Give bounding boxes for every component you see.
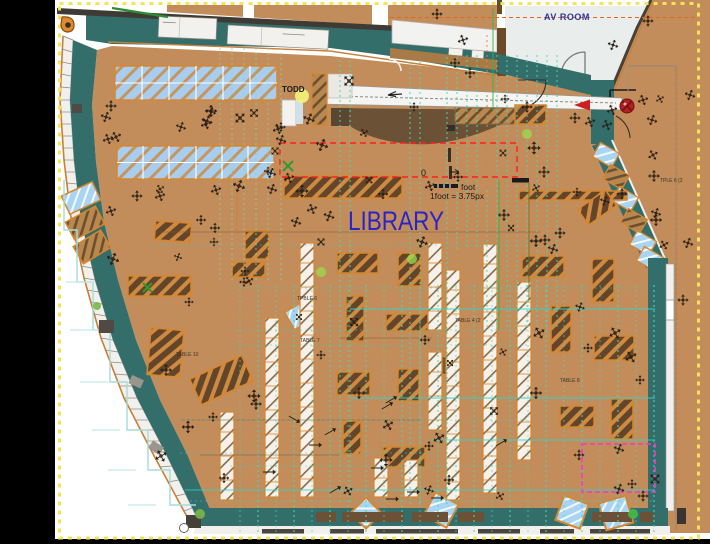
- svg-text:0: 0: [421, 168, 426, 178]
- svg-text:TODD: TODD: [282, 85, 305, 94]
- svg-text:TABLE 10: TABLE 10: [176, 352, 199, 358]
- svg-text:TABLE 7: TABLE 7: [300, 338, 320, 344]
- svg-text:AV ROOM: AV ROOM: [544, 12, 590, 22]
- svg-text:TABLE 4 (2: TABLE 4 (2: [455, 318, 481, 324]
- svg-text:TABLE 8: TABLE 8: [560, 378, 580, 384]
- svg-text:1foot = 3.75px: 1foot = 3.75px: [430, 191, 485, 201]
- svg-text:TPLE 6 (2: TPLE 6 (2: [660, 178, 683, 184]
- svg-text:LIBRARY: LIBRARY: [348, 206, 444, 236]
- svg-text:TPBLE 6: TPBLE 6: [297, 296, 317, 302]
